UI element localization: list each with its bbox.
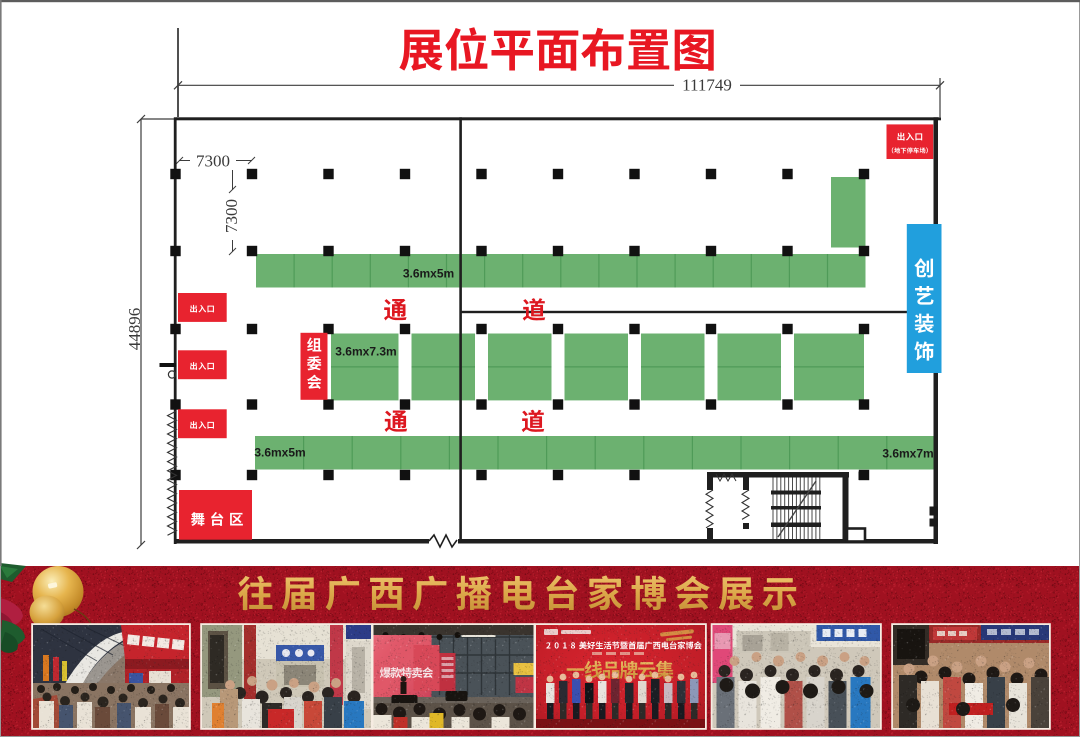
svg-text:3.6mx7.3m: 3.6mx7.3m xyxy=(335,345,396,359)
svg-text:3.6mx5m: 3.6mx5m xyxy=(403,267,454,281)
svg-text:3.6mx7m: 3.6mx7m xyxy=(882,447,933,461)
svg-text:7300: 7300 xyxy=(222,199,241,233)
svg-text:44896: 44896 xyxy=(125,308,144,351)
svg-text:7300: 7300 xyxy=(196,152,230,171)
svg-text:111749: 111749 xyxy=(682,76,732,95)
svg-text:3.6mx5m: 3.6mx5m xyxy=(254,446,305,460)
